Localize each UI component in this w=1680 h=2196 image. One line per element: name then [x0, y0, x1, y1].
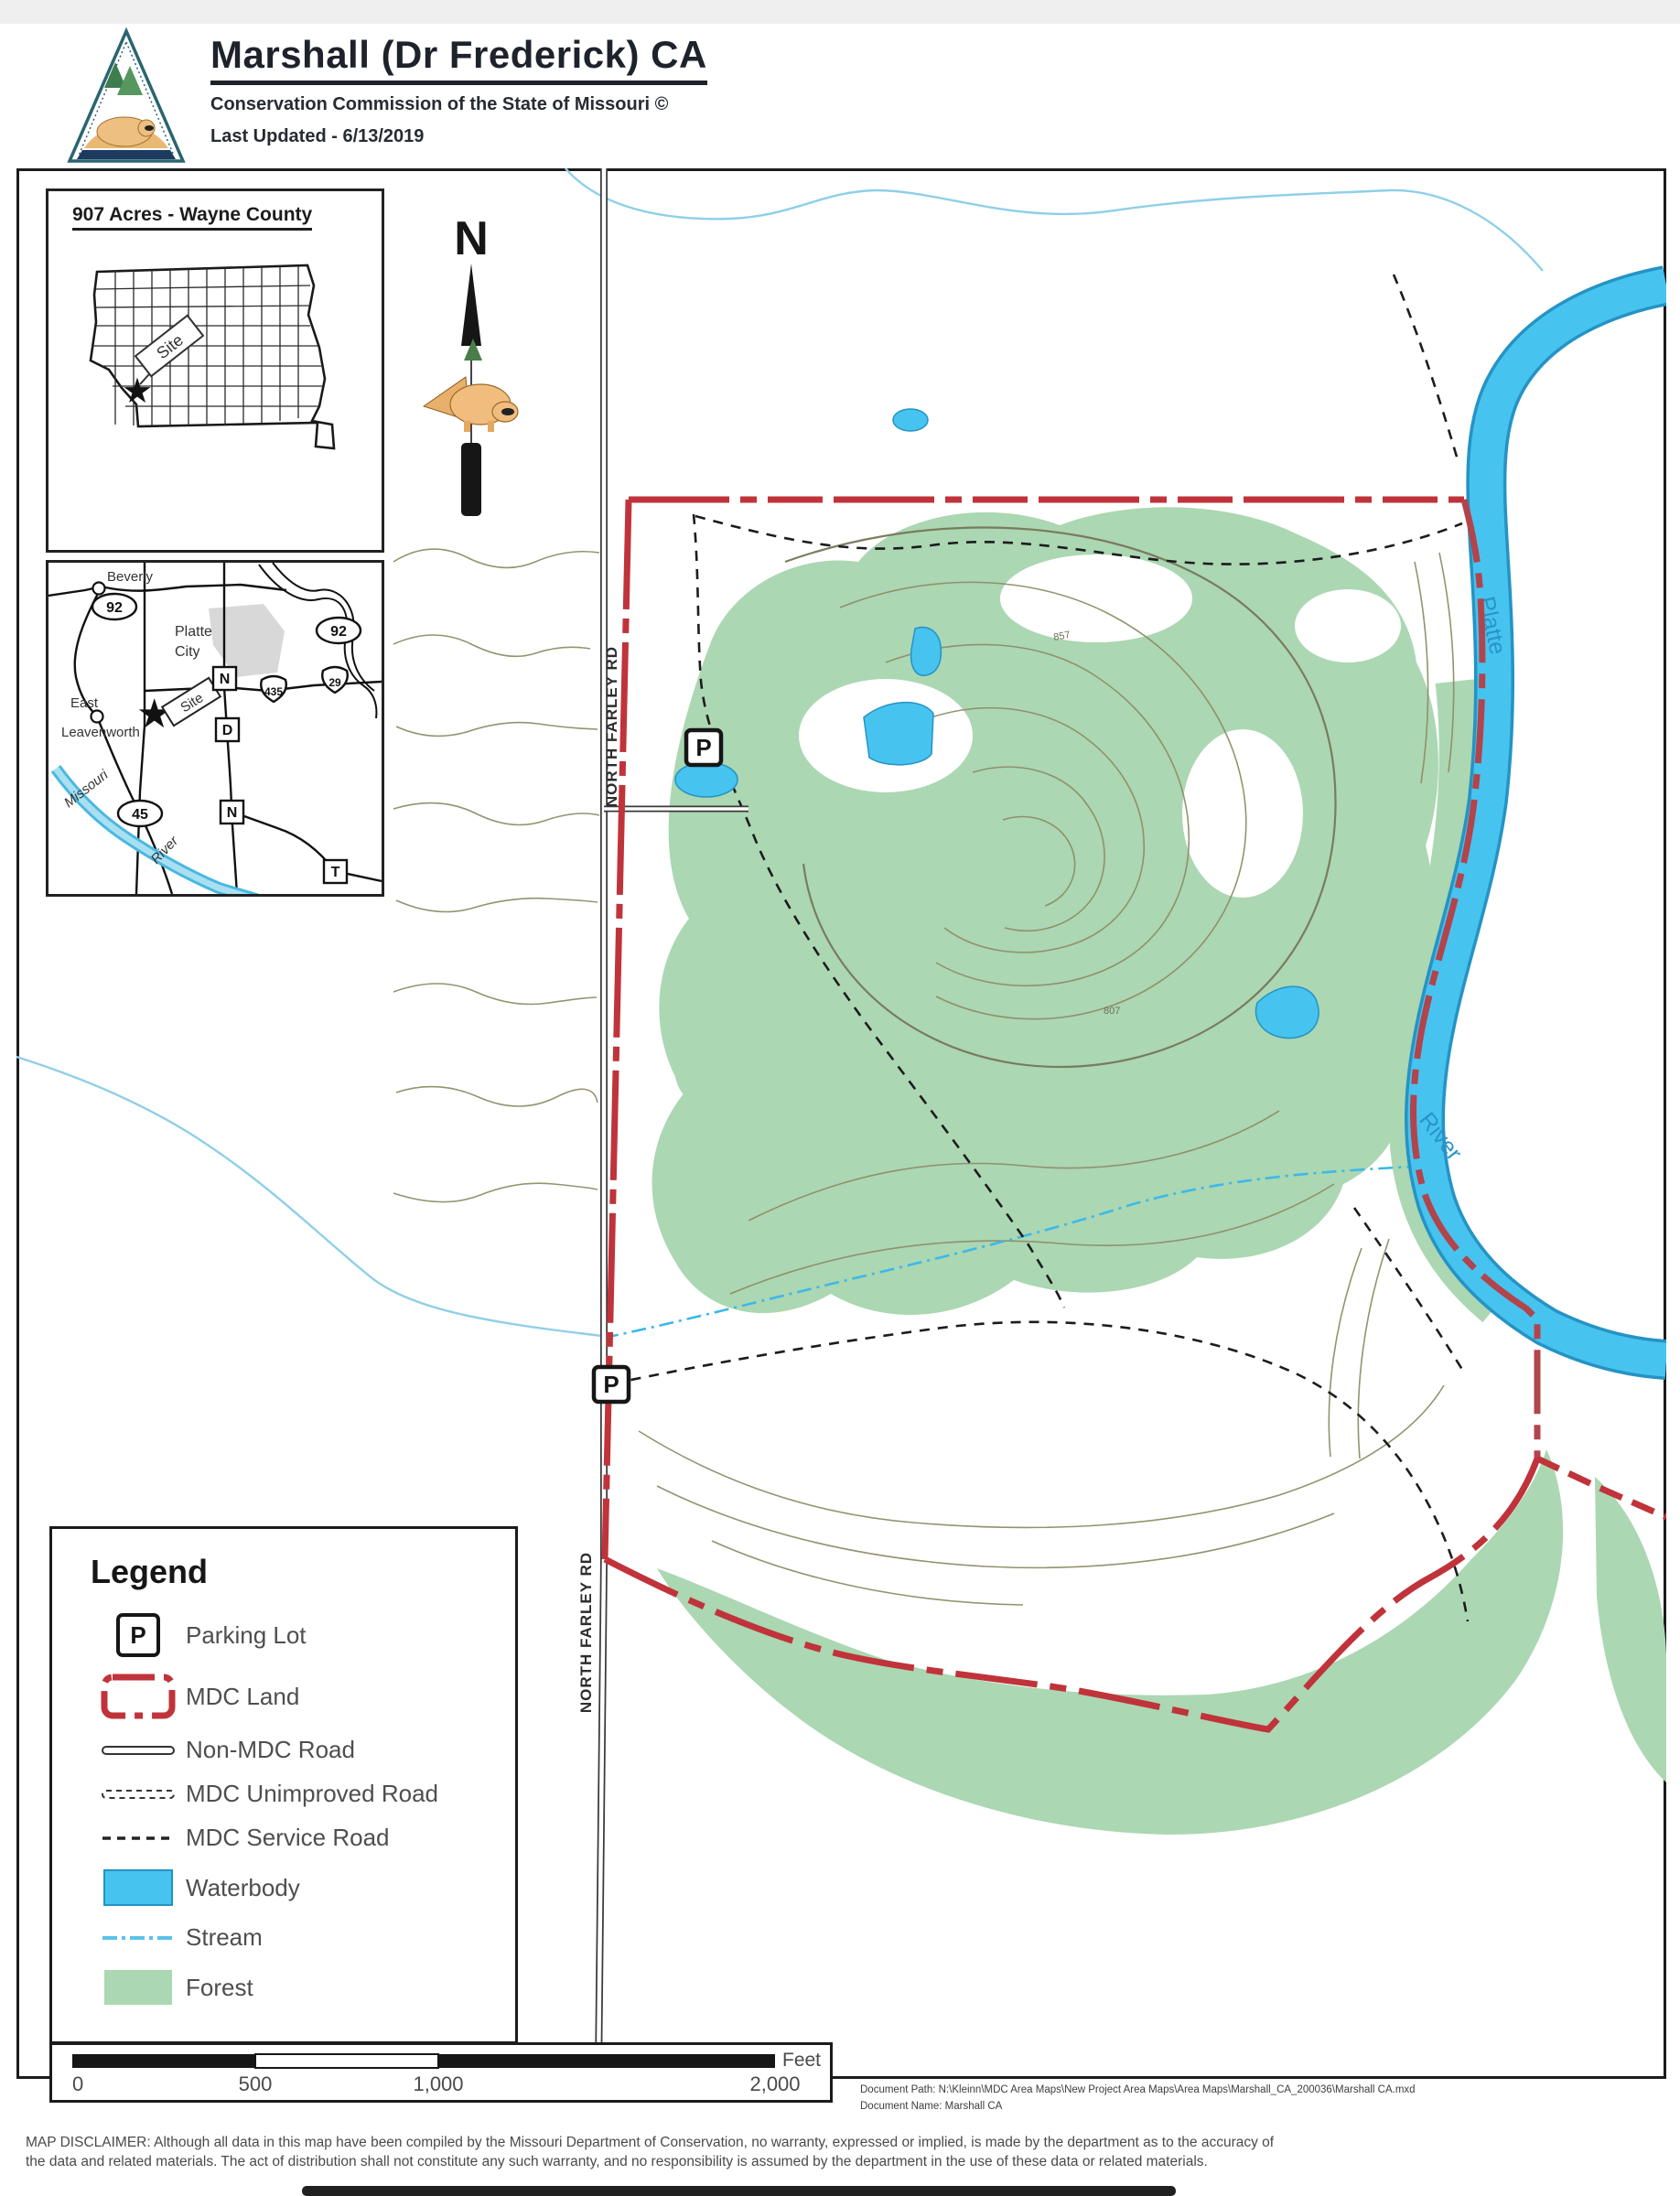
state-inset: 907 Acres - Wayne County ★ Site [46, 188, 384, 553]
map-disclaimer: MAP DISCLAIMER: Although all data in thi… [26, 2134, 1664, 2172]
disclaimer-line-1: MAP DISCLAIMER: Although all data in thi… [26, 2134, 1664, 2153]
legend-item-waterbody: Waterbody [91, 1868, 515, 1908]
mdc-land-icon [91, 1673, 186, 1720]
page-title: Marshall (Dr Frederick) CA [210, 33, 707, 85]
svg-text:N: N [220, 672, 231, 687]
legend-item-mdc-service: MDC Service Road [91, 1824, 515, 1852]
svg-text:92: 92 [106, 600, 123, 616]
missouri-county-map: ★ Site [48, 231, 378, 533]
site-flag: Site [162, 678, 221, 726]
legend-item-parking: P Parking Lot [91, 1613, 515, 1657]
road-label-north-farley-1: NORTH FARLEY RD [603, 646, 620, 807]
svg-text:D: D [222, 723, 233, 738]
parking-icon: P [116, 1613, 160, 1657]
town-beverly: Beverly [107, 569, 154, 585]
page-subtitle: Conservation Commission of the State of … [210, 94, 707, 115]
scale-unit: Feet [782, 2050, 821, 2071]
disclaimer-line-2: the data and related materials. The act … [26, 2153, 1664, 2172]
forest-areas [652, 507, 1666, 1835]
mdc-emblem-icon [424, 339, 518, 432]
mdc-unimproved-icon [91, 1787, 186, 1802]
non-mdc-road-icon [91, 1743, 186, 1758]
north-label: N [454, 212, 489, 265]
waterbody-icon [91, 1868, 186, 1908]
bottom-bar [302, 2186, 1176, 2196]
svg-text:92: 92 [330, 624, 347, 640]
road-label-north-farley-2: NORTH FARLEY RD [577, 1552, 595, 1713]
legend: Legend P Parking Lot MDC Land Non-MDC Ro… [49, 1526, 518, 2044]
page-top-band [0, 0, 1680, 24]
legend-item-non-mdc-road: Non-MDC Road [91, 1736, 515, 1764]
scale-tick-0: 0 [72, 2072, 83, 2095]
map-page: { "header": { "title": "Marshall (Dr Fre… [0, 0, 1680, 2196]
svg-text:29: 29 [328, 676, 341, 689]
contour-elevation-label: 807 [1104, 1006, 1120, 1017]
document-path: Document Path: N:\Kleinn\MDC Area Maps\N… [860, 2083, 1416, 2115]
north-arrow: N [416, 207, 526, 536]
legend-item-mdc-unimproved: MDC Unimproved Road [91, 1780, 515, 1808]
legend-item-mdc-land: MDC Land [91, 1673, 515, 1720]
forest-icon [91, 1967, 186, 2008]
mdc-service-icon [91, 1833, 186, 1844]
town-east-2: Leavenworth [61, 725, 140, 740]
legend-item-forest: Forest [91, 1967, 515, 2008]
scale-tick-1000: 1,000 [413, 2072, 463, 2095]
town-platte-city-2: City [175, 644, 200, 660]
scale-tick-2000: 2,000 [749, 2072, 800, 2095]
svg-text:435: 435 [264, 685, 283, 698]
document-path-line: Document Path: N:\Kleinn\MDC Area Maps\N… [860, 2083, 1416, 2099]
parking-lot-marker-1: P [686, 730, 721, 765]
document-name-line: Document Name: Marshall CA [860, 2099, 1416, 2115]
last-updated: Last Updated - 6/13/2019 [210, 126, 707, 147]
svg-text:T: T [331, 865, 340, 880]
site-star-icon: ★ [122, 372, 153, 411]
acreage-county-title: 907 Acres - Wayne County [72, 204, 312, 231]
local-inset: Beverly Platte City East Leavenworth Mis… [46, 560, 384, 897]
svg-text:P: P [603, 1371, 619, 1398]
local-road-map: Beverly Platte City East Leavenworth Mis… [48, 563, 382, 894]
stream-icon [91, 1932, 186, 1943]
scale-bar: Feet 0 500 1,000 2,000 [49, 2042, 833, 2103]
mdc-logo-icon [66, 27, 187, 171]
town-east-1: East [70, 695, 99, 711]
svg-text:N: N [227, 805, 238, 821]
town-platte-city-1: Platte [175, 624, 212, 640]
legend-title: Legend [91, 1553, 515, 1591]
svg-text:P: P [695, 734, 711, 761]
parking-lot-marker-2: P [594, 1367, 629, 1402]
legend-item-stream: Stream [91, 1923, 515, 1952]
scale-tick-500: 500 [239, 2072, 273, 2095]
svg-text:45: 45 [132, 807, 148, 823]
